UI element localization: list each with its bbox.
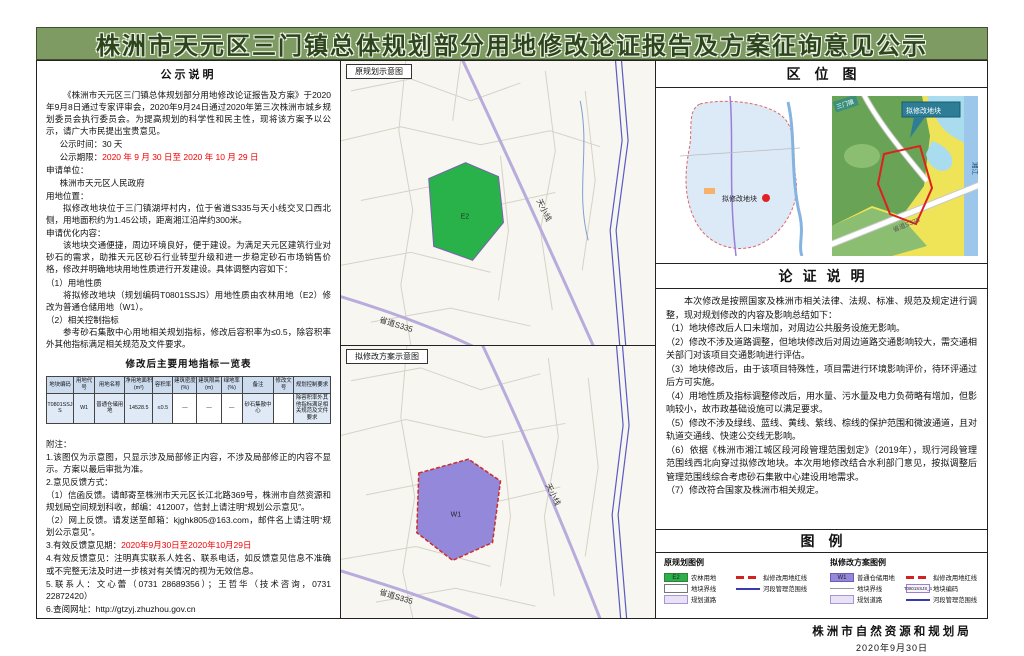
argument-header: 论证说明 <box>656 263 987 289</box>
legend-body: 原规划图例 E2 农林用地 地块界线 <box>656 553 987 618</box>
optimize-intro: 该地块交通便捷，周边环境良好，便于建设。为满足天元区建筑行业对砂石的需求，助推天… <box>46 239 331 275</box>
optimize-label: 申请优化内容： <box>46 227 331 239</box>
notes-block: 附注： 1.该图仅为示意图，只显示涉及局部修正内容，不涉及局部修正的内容不显示。… <box>46 438 331 615</box>
location-label: 用地位置： <box>46 190 331 202</box>
farmland-swatch: E2 <box>664 573 688 582</box>
cell-block-code: T0801SSJS <box>47 393 74 423</box>
zone-code-e2: E2 <box>461 213 470 220</box>
footer-signature: 株洲市自然资源和规划局 2020年9月30日 <box>772 623 1012 654</box>
note-item: 1.该图仅为示意图，只显示涉及局部修正内容，不涉及局部修正的内容不显示。方案以最… <box>46 451 331 475</box>
col-header: 用地名称 <box>95 377 125 394</box>
legend-label: 地块编码 <box>933 584 958 593</box>
legend-item: W1 普通仓储用地 <box>830 573 906 582</box>
col-header: 修改文号 <box>274 377 294 394</box>
notice-paragraph: 《株洲市天元区三门镇总体规划部分用地修改论证报告及方案》于2020年9月8日通过… <box>46 89 331 137</box>
legend-item: E2 农林用地 <box>664 573 736 582</box>
notice-period: 公示期限：2020 年 9 月 30 日至 2020 年 10 月 29 日 <box>60 151 331 163</box>
redline-swatch <box>736 576 760 579</box>
indicator-table: 地块编码 用地代号 用地名称 净用地面积(m²) 容积率 建筑密度(%) 建筑限… <box>46 376 331 424</box>
notice-period-label: 公示期限： <box>60 152 103 162</box>
item1-text: 将拟修改地块（规划编码T0801SSJS）用地性质由农林用地（E2）修改为普通仓… <box>46 289 331 313</box>
legend-label: 规划道路 <box>857 595 882 604</box>
item1-title: （1）用地性质 <box>46 277 331 289</box>
legend-header: 图例 <box>656 529 987 553</box>
argument-point: （3）地块修改后，由于该项目特殊性，项目需进行环境影响评价，待环评通过后方可实施… <box>666 363 977 390</box>
cell-height: — <box>197 393 221 423</box>
zone-code-w1: W1 <box>451 512 462 519</box>
cell-land-code: W1 <box>73 393 94 423</box>
location-minimaps: 拟修改地块 <box>656 88 987 263</box>
argument-point: （4）用地性质及指标调整修改后，用水量、污水量及电力负荷略有增加，但影响较小，故… <box>666 390 977 417</box>
notice-time: 公示时间：30 天 <box>60 138 331 150</box>
proposed-map-label: 拟修改方案示意图 <box>346 349 428 364</box>
legend-label: 拟修改用地红线 <box>933 573 977 582</box>
legend-label: 河段管理范围线 <box>763 584 807 593</box>
col-header: 净用地面积(m²) <box>125 377 153 394</box>
col-header: 建筑密度(%) <box>173 377 197 394</box>
legend-item: 拟修改用地红线 <box>736 573 822 582</box>
note-item: （1）信函反馈。请邮寄至株洲市天元区长江北路369号，株洲市自然资源和规划局空间… <box>46 489 331 513</box>
notice-section-title: 公示说明 <box>46 68 331 84</box>
cell-area: 14528.5 <box>125 393 153 423</box>
col-header: 地块编码 <box>47 377 74 394</box>
cell-density: — <box>173 393 197 423</box>
col-header: 绿地率(%) <box>221 377 242 394</box>
title-banner: 株洲市天元区三门镇总体规划部分用地修改论证报告及方案征询意见公示 <box>36 27 988 60</box>
item2-text: 参考砂石集散中心用地相关规划指标，修改后容积率为≤0.5，除容积率外其他指标满足… <box>46 326 331 350</box>
legend-label: 地块界线 <box>691 584 716 593</box>
argument-point: （2）修改不涉及道路调整，但地块修改后对周边道路交通影响较大，需交通相关部门对该… <box>666 336 977 363</box>
district-minimap: 拟修改地块 <box>670 96 816 256</box>
road-badge <box>704 188 715 194</box>
argument-point: （5）修改不涉及绿线、蓝线、黄线、紫线、棕线的保护范围和微波通道，且对轨道交通线… <box>666 417 977 444</box>
site-marker-dot <box>762 194 770 202</box>
river-mgmt-line-swatch <box>736 588 760 590</box>
legend-label: 规划道路 <box>691 595 716 604</box>
note6-label: 6.查阅网址： <box>46 604 96 614</box>
note-item: 2.意见反馈方式： <box>46 476 331 488</box>
cell-docno <box>274 393 294 423</box>
river-mgmt-line-swatch <box>906 599 930 601</box>
col-header: 备注 <box>242 377 273 394</box>
argument-title: 论证说明 <box>769 266 875 286</box>
argument-point: （6）依据《株洲市湘江城区段河段管理范围划定》（2019年），现行河段管理范围线… <box>666 444 977 485</box>
legend-item: T0801SSJS_1 地块编码 <box>906 584 987 593</box>
legend-item: 规划道路 <box>830 595 906 604</box>
proposed-map-graphic: W1 天小线 省道S335 <box>341 346 655 618</box>
storage-land-swatch: W1 <box>830 573 854 582</box>
legend-label: 拟修改用地红线 <box>763 573 807 582</box>
redline-swatch <box>906 576 930 579</box>
boundary-line-swatch <box>830 588 854 589</box>
legend-proposed-title: 拟修改方案图例 <box>830 557 987 568</box>
argument-point: （1）地块修改后人口未增加，对周边公共服务设施无影响。 <box>666 322 977 336</box>
indicator-table-title: 修改后主要用地指标一览表 <box>46 358 331 371</box>
location-map-title: 区位图 <box>773 64 871 84</box>
legend-original-group: 原规划图例 E2 农林用地 地块界线 <box>664 557 822 614</box>
cell-remark: 砂石集散中心 <box>242 393 273 423</box>
river-label: 湘江 <box>971 162 978 176</box>
col-header: 容积率 <box>153 377 173 394</box>
legend-item: 地块界线 <box>664 584 736 593</box>
col-header: 用地代号 <box>73 377 94 394</box>
note3-label: 3.有效反馈意见期： <box>46 540 121 550</box>
note-item: （2）网上反馈。请发送至邮箱：kjghk805@163.com，邮件名上请注明“… <box>46 514 331 538</box>
legend-proposed-group: 拟修改方案图例 W1 普通仓储用地 地块界线 <box>830 557 987 614</box>
cell-far: ≤0.5 <box>153 393 173 423</box>
site-callout-label: 拟修改地块 <box>906 106 941 115</box>
table-data-row: T0801SSJS W1 普通仓储用地 14528.5 ≤0.5 — — — 砂… <box>47 393 331 423</box>
cell-green: — <box>221 393 242 423</box>
notice-column: 公示说明 《株洲市天元区三门镇总体规划部分用地修改论证报告及方案》于2020年9… <box>37 61 341 618</box>
info-column: 区位图 拟修改地块 <box>656 61 987 618</box>
zoning-minimap-graphic: 三门镇 拟修改地块 湘江 省道S335 <box>832 96 978 256</box>
content-frame: 公示说明 《株洲市天元区三门镇总体规划部分用地修改论证报告及方案》于2020年9… <box>36 60 988 619</box>
maps-column: 原规划示意图 <box>341 61 656 618</box>
legend-item: 拟修改用地红线 <box>906 573 987 582</box>
col-header: 规划控制要求 <box>294 377 331 394</box>
legend-item: 河段管理范围线 <box>736 584 822 593</box>
location-map-header: 区位图 <box>656 61 987 88</box>
zoning-minimap: 三门镇 拟修改地块 湘江 省道S335 <box>832 96 978 256</box>
district-minimap-graphic: 拟修改地块 <box>670 96 816 256</box>
applicant-value: 株洲市天元区人民政府 <box>60 177 331 189</box>
original-plan-map: 原规划示意图 <box>341 61 655 346</box>
cell-requirement: 除容积率外其他指标满足相关规范及文件要求 <box>294 393 331 423</box>
legend-item: 河段管理范围线 <box>906 595 987 604</box>
boundary-swatch <box>664 584 688 593</box>
issuing-authority: 株洲市自然资源和规划局 <box>772 623 1012 639</box>
legend-label: 普通仓储用地 <box>857 573 895 582</box>
issue-date: 2020年9月30日 <box>772 641 1012 654</box>
notes-label: 附注： <box>46 438 331 450</box>
note-item: 5.联系人：文心蕾（0731 28689356）；王哲华（技术咨询，0731 2… <box>46 578 331 602</box>
applicant-label: 申请单位： <box>46 164 331 176</box>
table-header-row: 地块编码 用地代号 用地名称 净用地面积(m²) 容积率 建筑密度(%) 建筑限… <box>47 377 331 394</box>
legend-label: 农林用地 <box>691 573 716 582</box>
notice-poster: 株洲市天元区三门镇总体规划部分用地修改论证报告及方案征询意见公示 公示说明 《株… <box>0 0 1024 656</box>
original-map-label: 原规划示意图 <box>346 64 412 79</box>
cell-land-name: 普通仓储用地 <box>95 393 125 423</box>
location-value: 拟修改地块位于三门镇湖坪村内，位于省道S335与天小线交叉口西北侧，用地面积约为… <box>46 202 331 226</box>
note-item: 4.有效反馈意见：注明真实联系人姓名、联系电话，如反馈意见信息不准确或不完整无法… <box>46 552 331 576</box>
note-item: 6.查阅网址：http://gtzyj.zhuzhou.gov.cn <box>46 603 331 615</box>
col-header: 建筑限高(m) <box>197 377 221 394</box>
legend-original-title: 原规划图例 <box>664 557 822 568</box>
note-item: 3.有效反馈意见期：2020年9月30日至2020年10月29日 <box>46 539 331 551</box>
legend-item: 地块界线 <box>830 584 906 593</box>
argument-intro: 本次修改是按照国家及株洲市相关法律、法规、标准、规范及规定进行调整，现对规划修改… <box>666 295 977 322</box>
site-marker-label: 拟修改地块 <box>722 194 757 203</box>
planned-road-swatch <box>830 595 854 604</box>
item2-title: （2）相关控制指标 <box>46 314 331 326</box>
legend-item: 规划道路 <box>664 595 736 604</box>
block-code-swatch: T0801SSJS_1 <box>906 584 930 593</box>
proposed-plan-map: 拟修改方案示意图 <box>341 346 655 618</box>
planned-road-swatch <box>664 595 688 604</box>
original-map-graphic: E2 天小线 省道S335 <box>341 61 655 345</box>
notice-period-value: 2020 年 9 月 30 日至 2020 年 10 月 29 日 <box>102 152 258 162</box>
note3-dates: 2020年9月30日至2020年10月29日 <box>121 540 251 550</box>
legend-label: 地块界线 <box>857 584 882 593</box>
page-title: 株洲市天元区三门镇总体规划部分用地修改论证报告及方案征询意见公示 <box>96 26 928 61</box>
argument-point: （7）修改符合国家及株洲市相关规定。 <box>666 484 977 498</box>
argument-text: 本次修改是按照国家及株洲市相关法律、法规、标准、规范及规定进行调整，现对规划修改… <box>656 289 987 529</box>
legend-title: 图例 <box>787 531 857 551</box>
website-url: http://gtzyj.zhuzhou.gov.cn <box>96 604 196 614</box>
legend-label: 河段管理范围线 <box>933 595 977 604</box>
